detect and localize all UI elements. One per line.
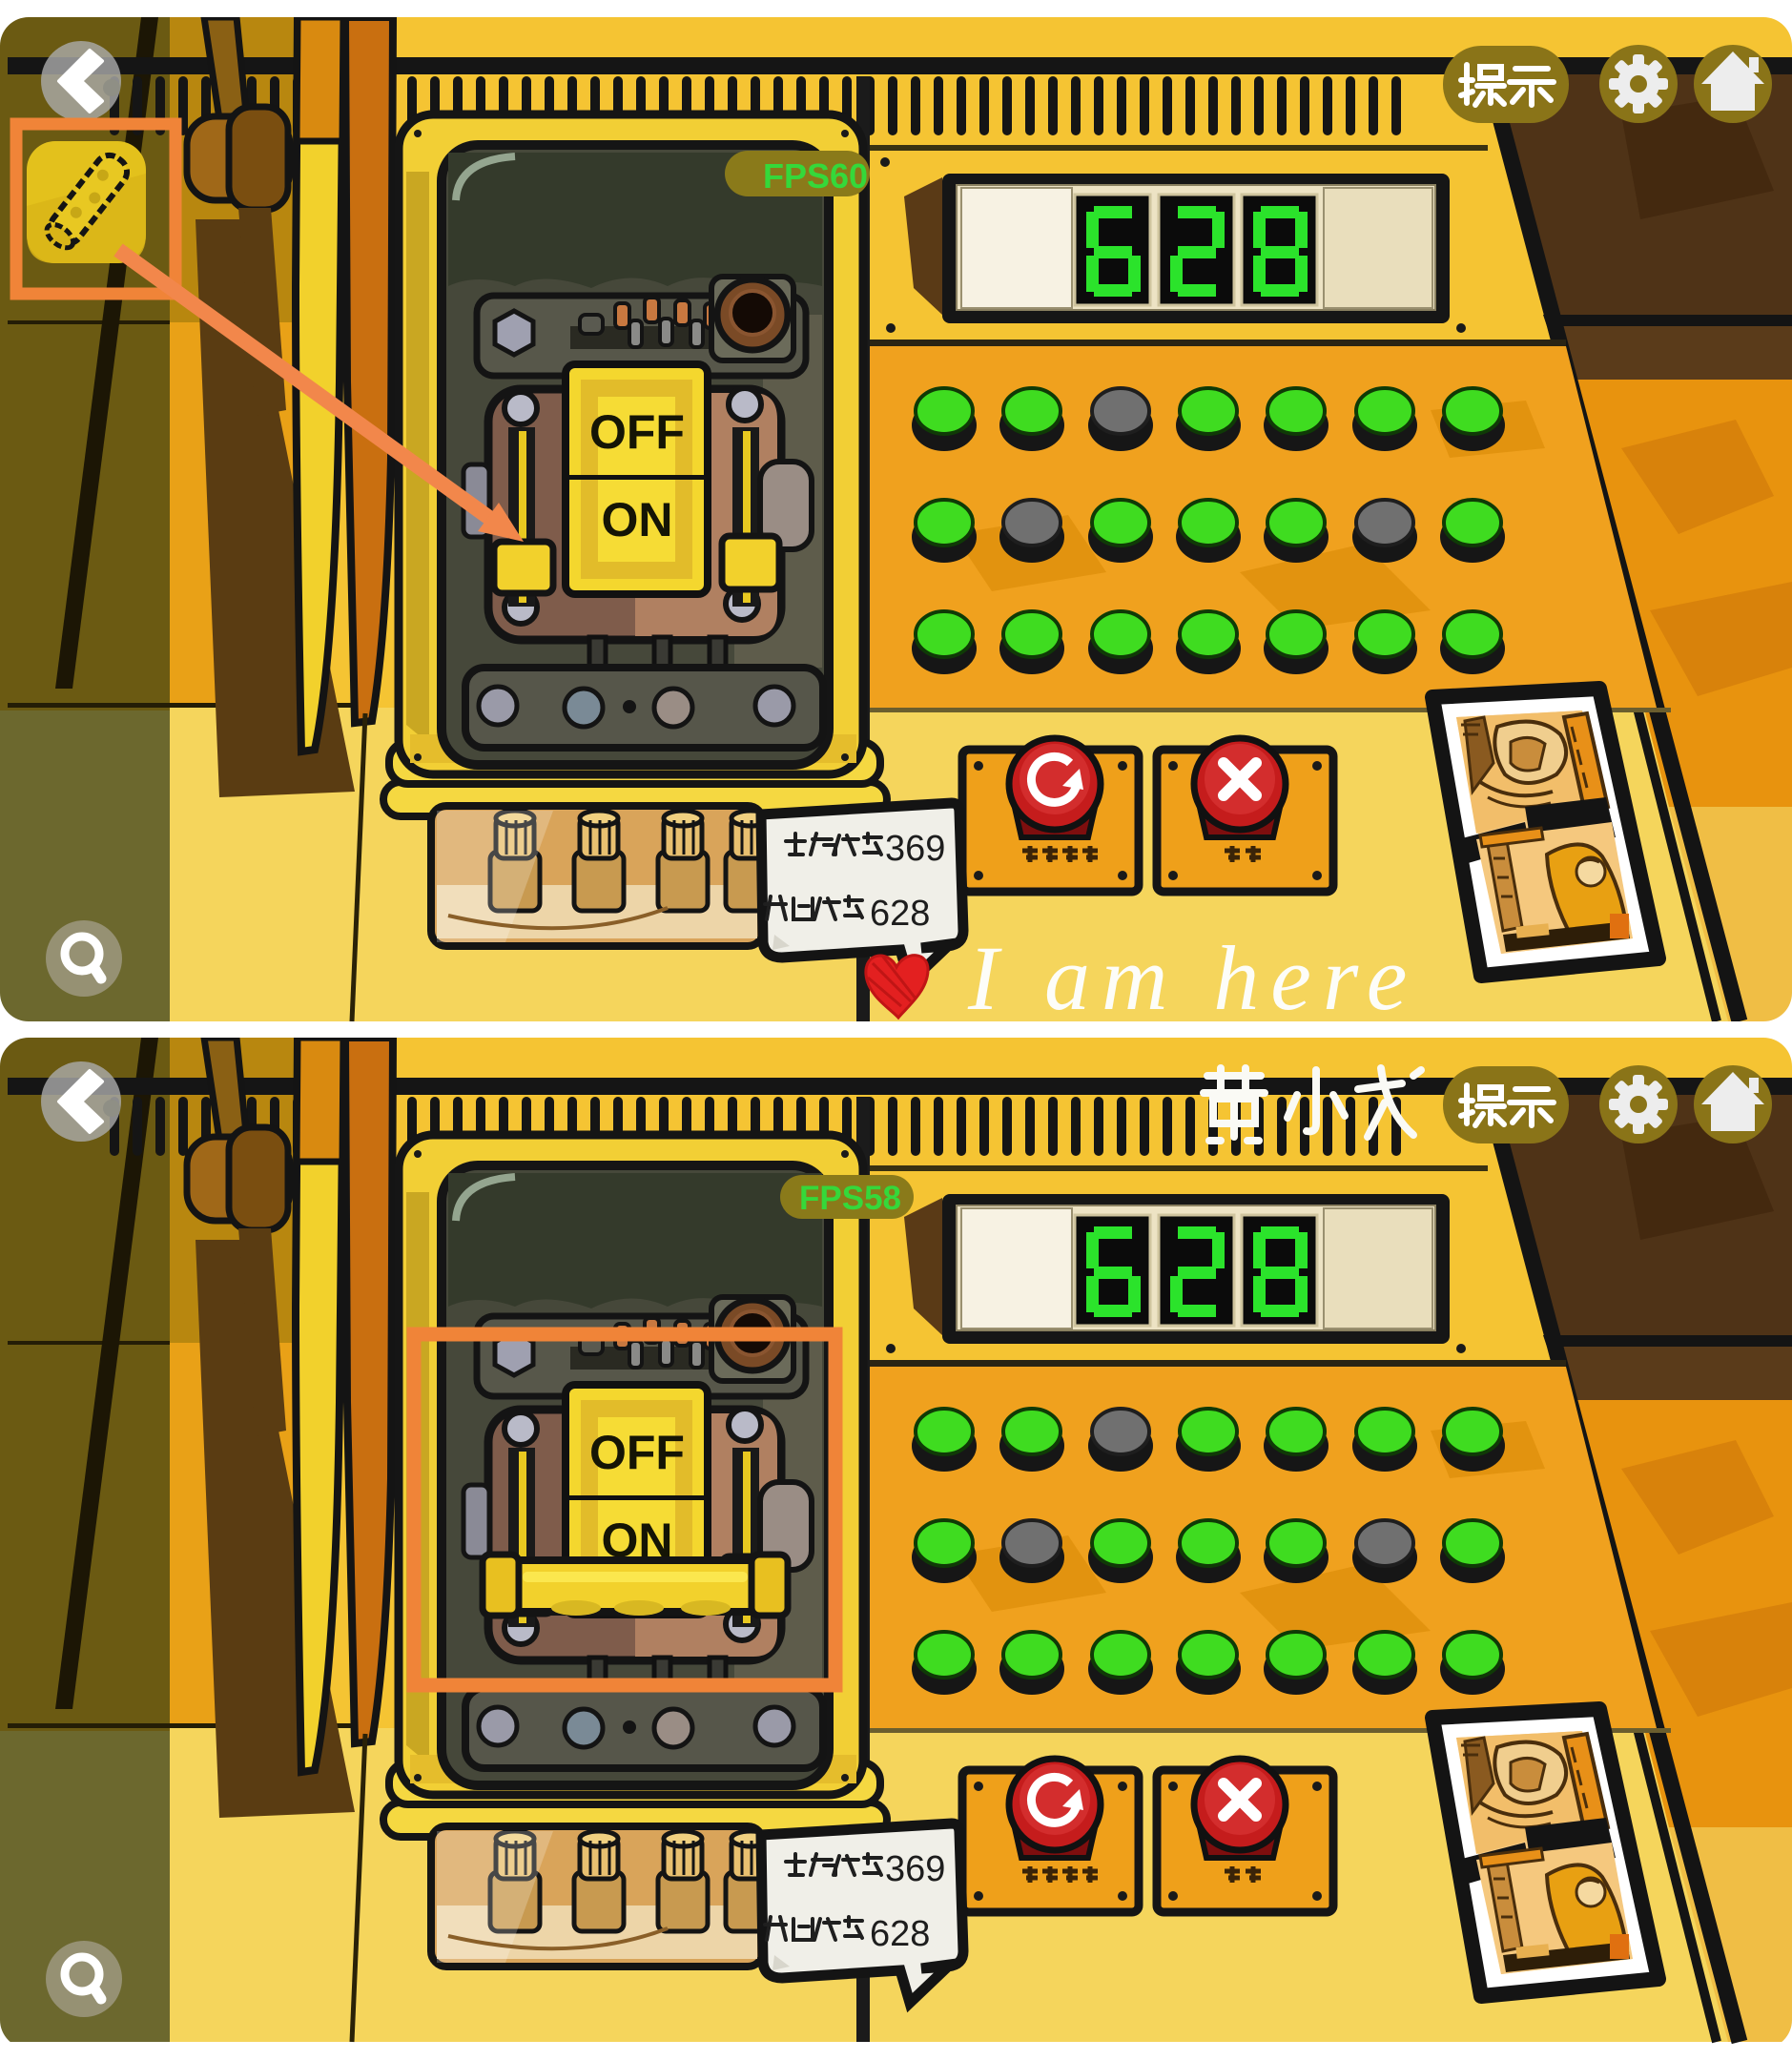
- svg-text:FPS60: FPS60: [763, 156, 868, 196]
- svg-text:I am here: I am here: [967, 927, 1418, 1029]
- svg-text:FPS58: FPS58: [799, 1180, 901, 1217]
